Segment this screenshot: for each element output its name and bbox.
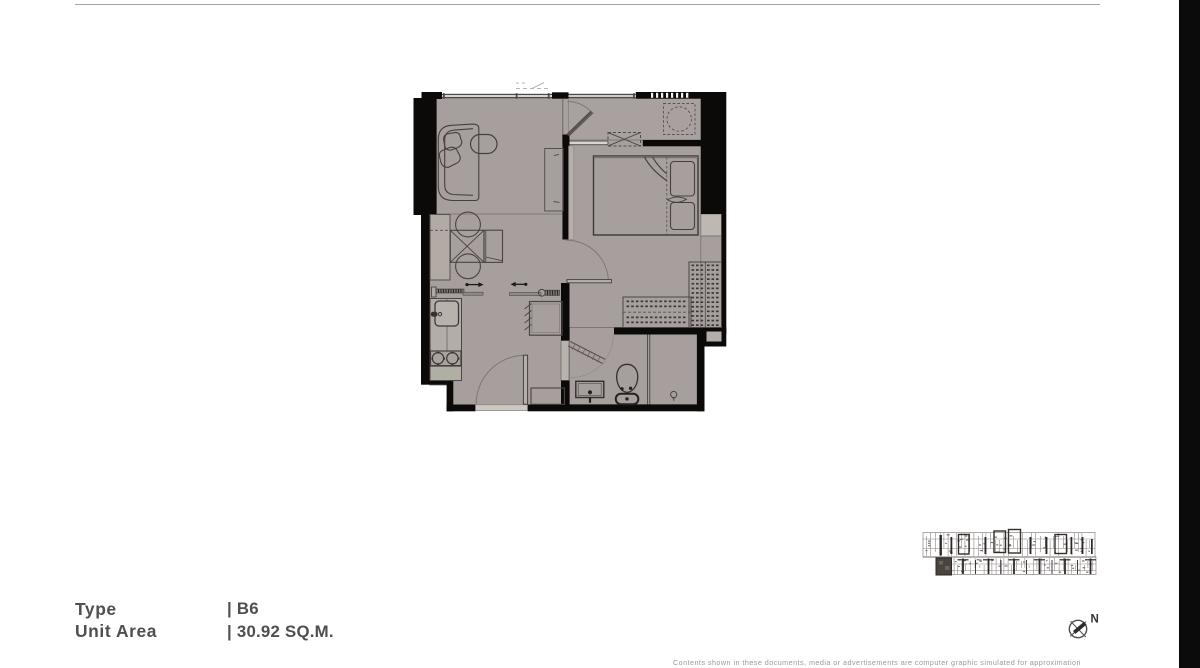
svg-text:N: N bbox=[1091, 614, 1099, 626]
